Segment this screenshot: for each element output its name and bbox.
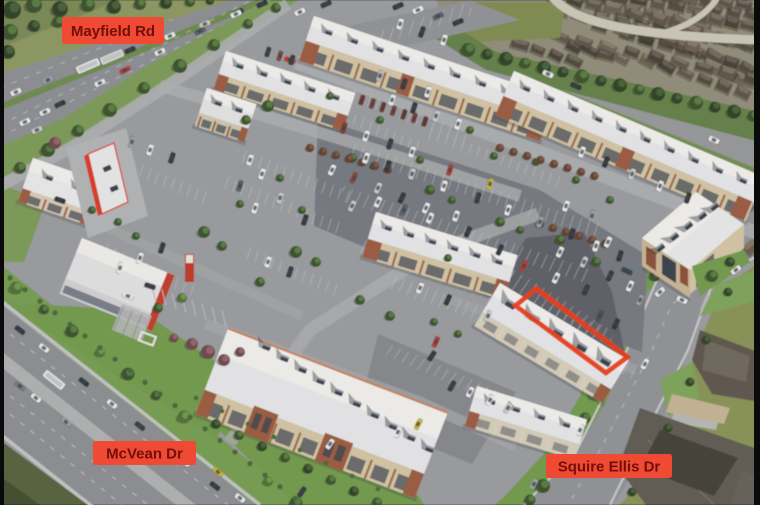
svg-text:McVean Dr: McVean Dr xyxy=(106,446,183,463)
svg-text:Mayfield Rd: Mayfield Rd xyxy=(71,23,155,40)
svg-text:Squire Ellis Dr: Squire Ellis Dr xyxy=(558,459,661,476)
